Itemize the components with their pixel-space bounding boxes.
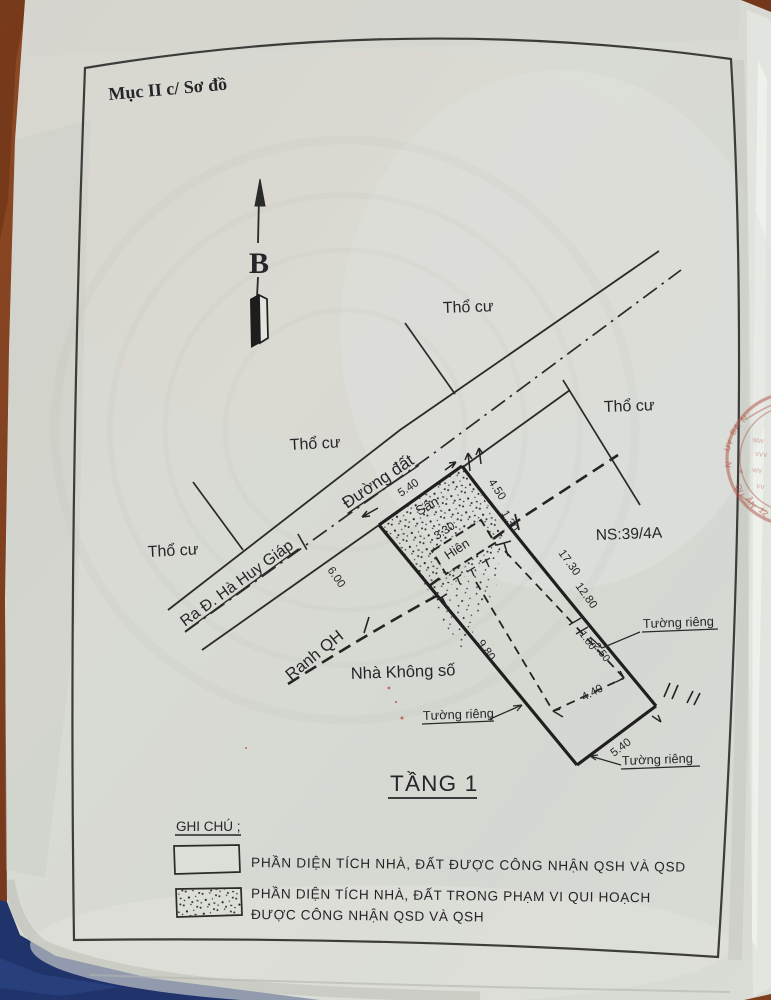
svg-text:wv: wv [751,465,763,475]
svg-text:Tường riêng: Tường riêng [643,614,715,631]
svg-text:Thổ cư: Thổ cư [604,396,656,416]
svg-text:TẦNG 1: TẦNG 1 [390,771,478,796]
svg-text:Thổ cư: Thổ cư [289,433,341,454]
svg-text:vvv: vvv [755,449,768,459]
svg-text:ww: ww [751,435,765,446]
svg-text:Nhà Không số: Nhà Không số [351,661,456,683]
svg-text:Thổ cư: Thổ cư [147,540,199,561]
svg-text:✶: ✶ [738,468,744,476]
svg-text:Tường riêng: Tường riêng [423,706,495,723]
svg-text:Thổ cư: Thổ cư [443,297,495,317]
svg-text:ĐƯỢC CÔNG NHẬN QSD VÀ QSH: ĐƯỢC CÔNG NHẬN QSD VÀ QSH [251,907,484,924]
svg-text:vv: vv [756,481,765,491]
svg-text:N: N [723,461,733,468]
svg-text:Tường riêng: Tường riêng [622,751,694,768]
svg-text:B: B [249,247,269,280]
svg-text:GHI CHÚ ;: GHI CHÚ ; [176,819,241,834]
svg-text:NS:39/4A: NS:39/4A [596,525,664,544]
